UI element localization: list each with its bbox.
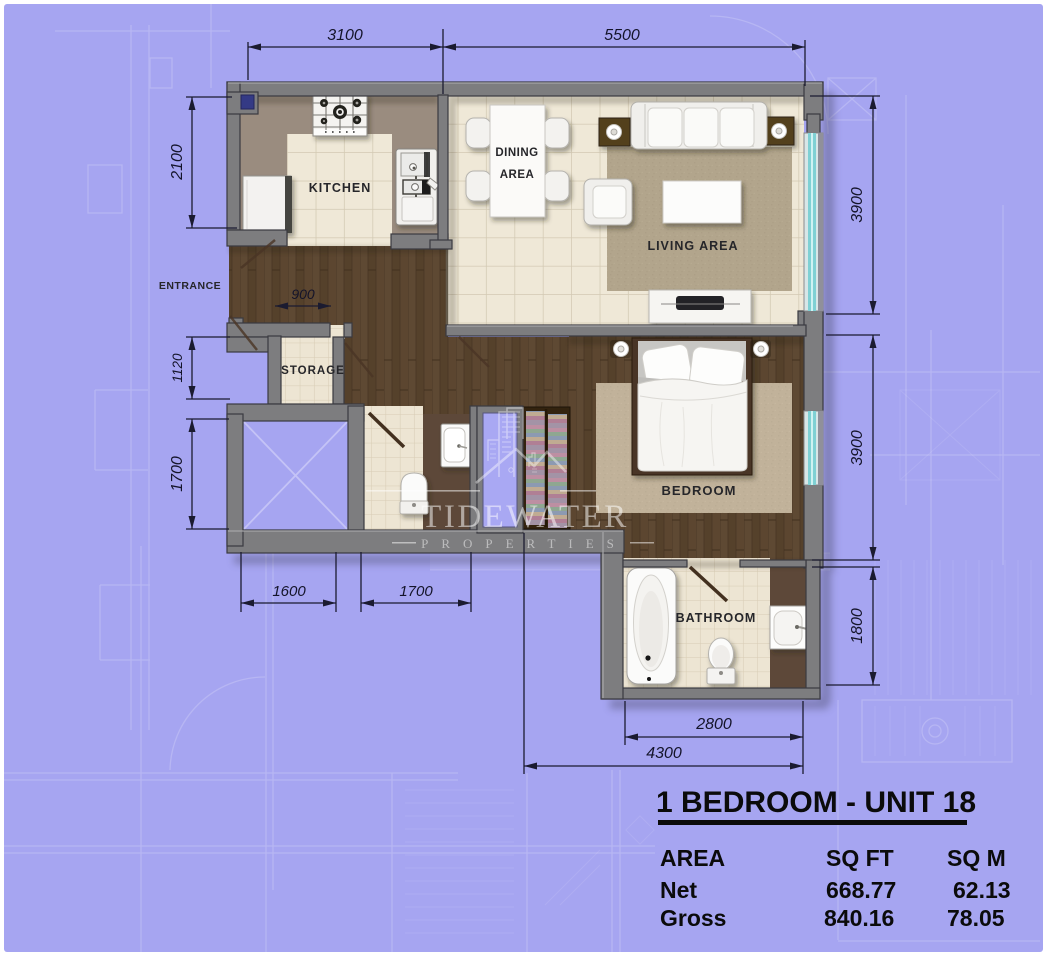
svg-text:3100: 3100 xyxy=(327,27,363,44)
svg-text:840.16: 840.16 xyxy=(824,905,894,931)
svg-text:2800: 2800 xyxy=(695,716,732,733)
svg-text:1700: 1700 xyxy=(399,583,433,600)
svg-text:62.13: 62.13 xyxy=(953,877,1011,903)
svg-text:STORAGE: STORAGE xyxy=(281,365,345,377)
svg-text:SQ FT: SQ FT xyxy=(826,845,894,871)
svg-text:78.05: 78.05 xyxy=(947,905,1005,931)
svg-text:1800: 1800 xyxy=(849,608,866,644)
svg-text:3900: 3900 xyxy=(849,430,866,466)
svg-text:LIVING AREA: LIVING AREA xyxy=(647,239,738,253)
svg-text:BEDROOM: BEDROOM xyxy=(662,483,737,498)
svg-text:1600: 1600 xyxy=(272,583,306,600)
svg-text:AREA: AREA xyxy=(660,845,725,871)
svg-text:4300: 4300 xyxy=(646,745,682,762)
svg-text:1120: 1120 xyxy=(170,353,185,383)
svg-text:3900: 3900 xyxy=(849,187,866,223)
svg-text:1 BEDROOM - UNIT 18: 1 BEDROOM - UNIT 18 xyxy=(656,786,976,819)
svg-text:AREA: AREA xyxy=(500,169,535,181)
svg-text:Gross: Gross xyxy=(660,905,726,931)
svg-text:1700: 1700 xyxy=(169,456,186,492)
svg-text:900: 900 xyxy=(291,286,315,302)
svg-text:KITCHEN: KITCHEN xyxy=(309,181,372,195)
svg-text:Net: Net xyxy=(660,877,697,903)
svg-text:2100: 2100 xyxy=(169,144,186,181)
svg-text:668.77: 668.77 xyxy=(826,877,896,903)
svg-text:SQ M: SQ M xyxy=(947,845,1006,871)
svg-text:5500: 5500 xyxy=(604,27,640,44)
svg-text:DINING: DINING xyxy=(495,147,538,159)
svg-text:TIDEWATER: TIDEWATER xyxy=(421,499,629,535)
svg-text:ENTRANCE: ENTRANCE xyxy=(159,280,221,292)
svg-text:BATHROOM: BATHROOM xyxy=(676,611,757,625)
